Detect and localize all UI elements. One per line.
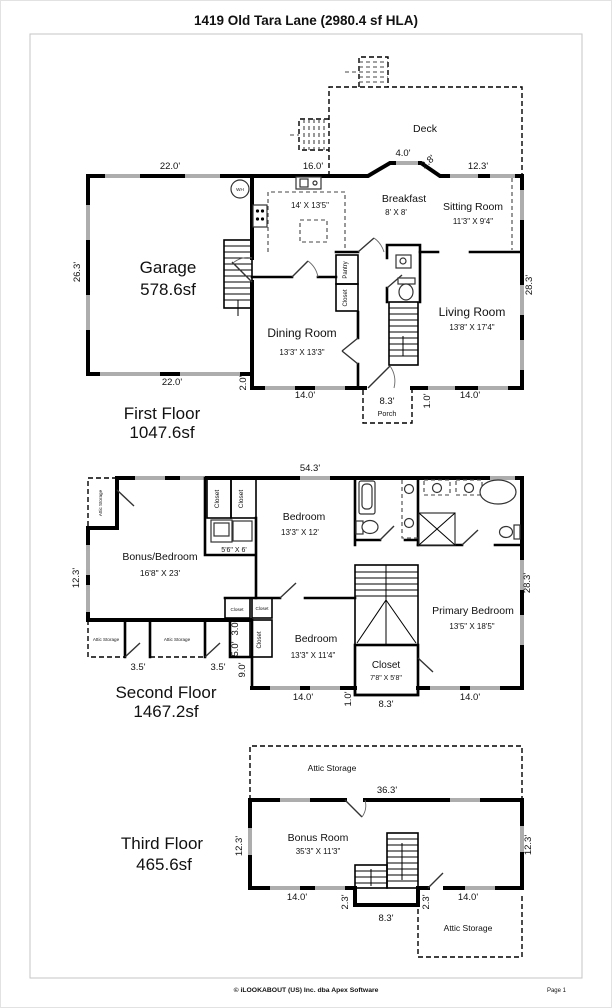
toilet2-bowl <box>362 521 378 534</box>
attic-top-label: Attic Storage <box>308 763 357 773</box>
dim2-botjog: 1.0' <box>343 691 354 706</box>
dim-deck-2: 2.8' <box>419 153 438 171</box>
sink-icon <box>405 519 414 528</box>
dim3-right: 12.3' <box>523 835 534 855</box>
third-stairs-treads2 <box>355 869 387 886</box>
pantry-label: Pantry <box>343 261 349 278</box>
hall-bath-door <box>380 526 394 540</box>
kitchen-faucet <box>313 181 317 185</box>
bonus-room-dims: 35'3" X 11'3" <box>296 847 341 856</box>
laundry-dims: 5'6" X 6' <box>221 547 246 554</box>
dim-deck-3: 12.3' <box>468 161 488 172</box>
dim2-right: 28.3' <box>522 573 533 593</box>
burner-icon <box>261 209 264 212</box>
garage-area-label: 578.6sf <box>140 280 196 299</box>
first-floor-title: First Floor <box>124 404 201 423</box>
garage-stairs-treads <box>224 246 252 316</box>
burner-icon <box>256 217 259 220</box>
dim2-attic2: 3.5' <box>210 662 225 673</box>
toilet3-bowl <box>500 527 513 538</box>
closet-mid-1-label: Closet <box>230 607 244 612</box>
stove-icon <box>253 205 267 227</box>
dim-jog: 2.0' <box>238 375 249 390</box>
washer-drum <box>214 523 229 536</box>
primary-bath-door <box>462 530 478 545</box>
closet-top-2-label: Closet <box>238 490 245 509</box>
garage-door-leaf <box>232 262 252 282</box>
toilet3-tank <box>514 525 520 539</box>
primary-dims: 13'5" X 18'5" <box>449 622 494 631</box>
second-floor-plan: 54.3' Attic Storage Attic Storage Attic … <box>71 463 533 721</box>
dim3-jog2: 2.3' <box>421 894 432 909</box>
sink-icon <box>465 484 474 493</box>
dryer-icon <box>233 521 252 541</box>
kitchen-dims: 14' X 13'5" <box>291 201 329 210</box>
dim-top-kitchen: 16.0' <box>303 161 323 172</box>
third-floor-area: 465.6sf <box>136 855 192 874</box>
third-floor-windows <box>250 800 522 888</box>
deck-label: Deck <box>413 123 438 135</box>
dining-label: Dining Room <box>267 326 336 340</box>
bathtub-basin <box>362 484 372 509</box>
dim3-top: 36.3' <box>377 785 397 796</box>
dim-bot-garage: 22.0' <box>162 377 182 388</box>
dim3-jog1: 2.3' <box>340 894 351 909</box>
second-floor-title: Second Floor <box>115 683 216 702</box>
kitchen-island-dashed <box>300 220 327 242</box>
sink-icon <box>405 485 414 494</box>
big-closet-door <box>418 658 433 672</box>
big-closet-label: Closet <box>372 660 401 671</box>
dining-dims: 13'3" X 13'3" <box>279 348 324 357</box>
closet-vert-label: Closet <box>257 631 263 648</box>
primary-label: Primary Bedroom <box>432 605 514 617</box>
hall-door-leaf <box>358 238 374 252</box>
closet-mid-2-label: Closet <box>255 606 269 611</box>
dim3-bot2: 8.3' <box>378 913 393 924</box>
dim2-left: 12.3' <box>71 568 82 588</box>
third-floor-plan: Attic Storage 36.3' Attic Storage Bonus … <box>121 746 534 957</box>
bedroom1-dims: 13'3" X 12' <box>281 528 319 537</box>
dim3-bot1: 14.0' <box>287 892 307 903</box>
porch-label: Porch <box>378 409 397 418</box>
toilet-bowl-icon <box>399 284 413 300</box>
dim2-bot3: 14.0' <box>460 692 480 703</box>
garden-tub-icon <box>480 480 516 504</box>
dim2-bot1: 14.0' <box>293 692 313 703</box>
first-floor-area: 1047.6sf <box>129 423 194 442</box>
floorplan-canvas: 1419 Old Tara Lane (2980.4 sf HLA) Deck … <box>0 0 612 1008</box>
breakfast-label: Breakfast <box>382 193 426 205</box>
third-floor-title: Third Floor <box>121 834 204 853</box>
dim3-bot3: 14.0' <box>458 892 478 903</box>
sitting-label: Sitting Room <box>443 201 503 213</box>
front-door-leaf <box>368 366 390 388</box>
bedroom2-dims: 13'3" X 11'4" <box>291 651 336 660</box>
bonus-label: Bonus/Bedroom <box>122 551 198 563</box>
toilet-tank-icon <box>398 278 415 284</box>
sitting-dims: 11'3" X 9'4" <box>453 217 493 226</box>
sink-icon <box>433 484 442 493</box>
dim2-jog2: 5.0' <box>230 641 241 656</box>
bedroom1-label: Bedroom <box>283 511 326 523</box>
dim-porch-depth: 1.0' <box>422 393 433 408</box>
living-dims: 13'8" X 17'4" <box>449 323 494 332</box>
footer-copyright: © iLOOKABOUT (US) Inc. dba Apex Software <box>234 986 379 994</box>
kitchen-sink-basin <box>300 179 308 187</box>
dim-top-garage: 22.0' <box>160 161 180 172</box>
page-edge <box>1 1 612 1008</box>
second-stairs-treads <box>355 565 418 645</box>
water-heater-label: WH <box>236 187 244 192</box>
dim-deck-1: 4.0' <box>395 148 410 159</box>
living-label: Living Room <box>439 305 506 319</box>
dim-porch: 8.3' <box>379 396 394 407</box>
deck-stairs-top-treads <box>345 62 388 82</box>
powder-sink-basin <box>400 258 406 264</box>
dining-double-doors <box>342 338 358 364</box>
burner-icon <box>256 209 259 212</box>
attic-notch-door <box>117 490 134 506</box>
attic-storage-2-label: Attic Storage <box>164 637 191 642</box>
dining-door-leaf <box>292 261 308 277</box>
breakfast-dims: 8' X 8' <box>385 208 407 217</box>
dining-door-arc <box>308 261 318 277</box>
dim2-jog3: 9.0' <box>237 662 248 677</box>
big-closet-dims: 7'8" X 5'8" <box>370 675 402 682</box>
dim2-top: 54.3' <box>300 463 320 474</box>
attic-notch-label: Attic Storage <box>98 489 103 516</box>
dim2-bot2: 8.3' <box>378 699 393 710</box>
bedroom2-label: Bedroom <box>295 633 338 645</box>
burner-icon <box>261 217 264 220</box>
bonus-dims: 16'8" X 23' <box>140 568 181 578</box>
dim-left: 26.3' <box>72 262 83 282</box>
floorplan-page: 1419 Old Tara Lane (2980.4 sf HLA) Deck … <box>0 0 612 1008</box>
garage-label: Garage <box>140 258 197 277</box>
garage-stairs <box>224 240 252 308</box>
third-door-arc <box>362 800 366 817</box>
bedroom1-door <box>280 583 296 598</box>
dim3-left: 12.3' <box>234 836 245 856</box>
second-floor-area: 1467.2sf <box>133 702 198 721</box>
closet-top-1-label: Closet <box>214 490 221 509</box>
dim2-jog1: 3.0' <box>230 620 241 635</box>
footer-page-number: Page 1 <box>547 988 567 994</box>
dim2-attic1: 3.5' <box>130 662 145 673</box>
first-floor-plan: Deck WH Garage 578.6sf 14' X 13'5" Break… <box>72 57 535 442</box>
attic-bottom-label: Attic Storage <box>444 923 493 933</box>
front-door-arc <box>390 366 395 388</box>
main-stairs-treads <box>389 308 418 356</box>
deck-stairs-left-treads <box>290 119 324 150</box>
hall-door-arc <box>374 238 384 252</box>
dim-bot-dining: 14.0' <box>295 390 315 401</box>
page-title: 1419 Old Tara Lane (2980.4 sf HLA) <box>194 13 418 28</box>
third-stairs-treads1 <box>387 839 418 881</box>
attic-storage-1-label: Attic Storage <box>93 637 120 642</box>
closet-label: Closet <box>343 289 349 306</box>
dim-right: 28.3' <box>524 275 535 295</box>
dim-bot-living: 14.0' <box>460 390 480 401</box>
bonus-room-label: Bonus Room <box>288 832 349 844</box>
